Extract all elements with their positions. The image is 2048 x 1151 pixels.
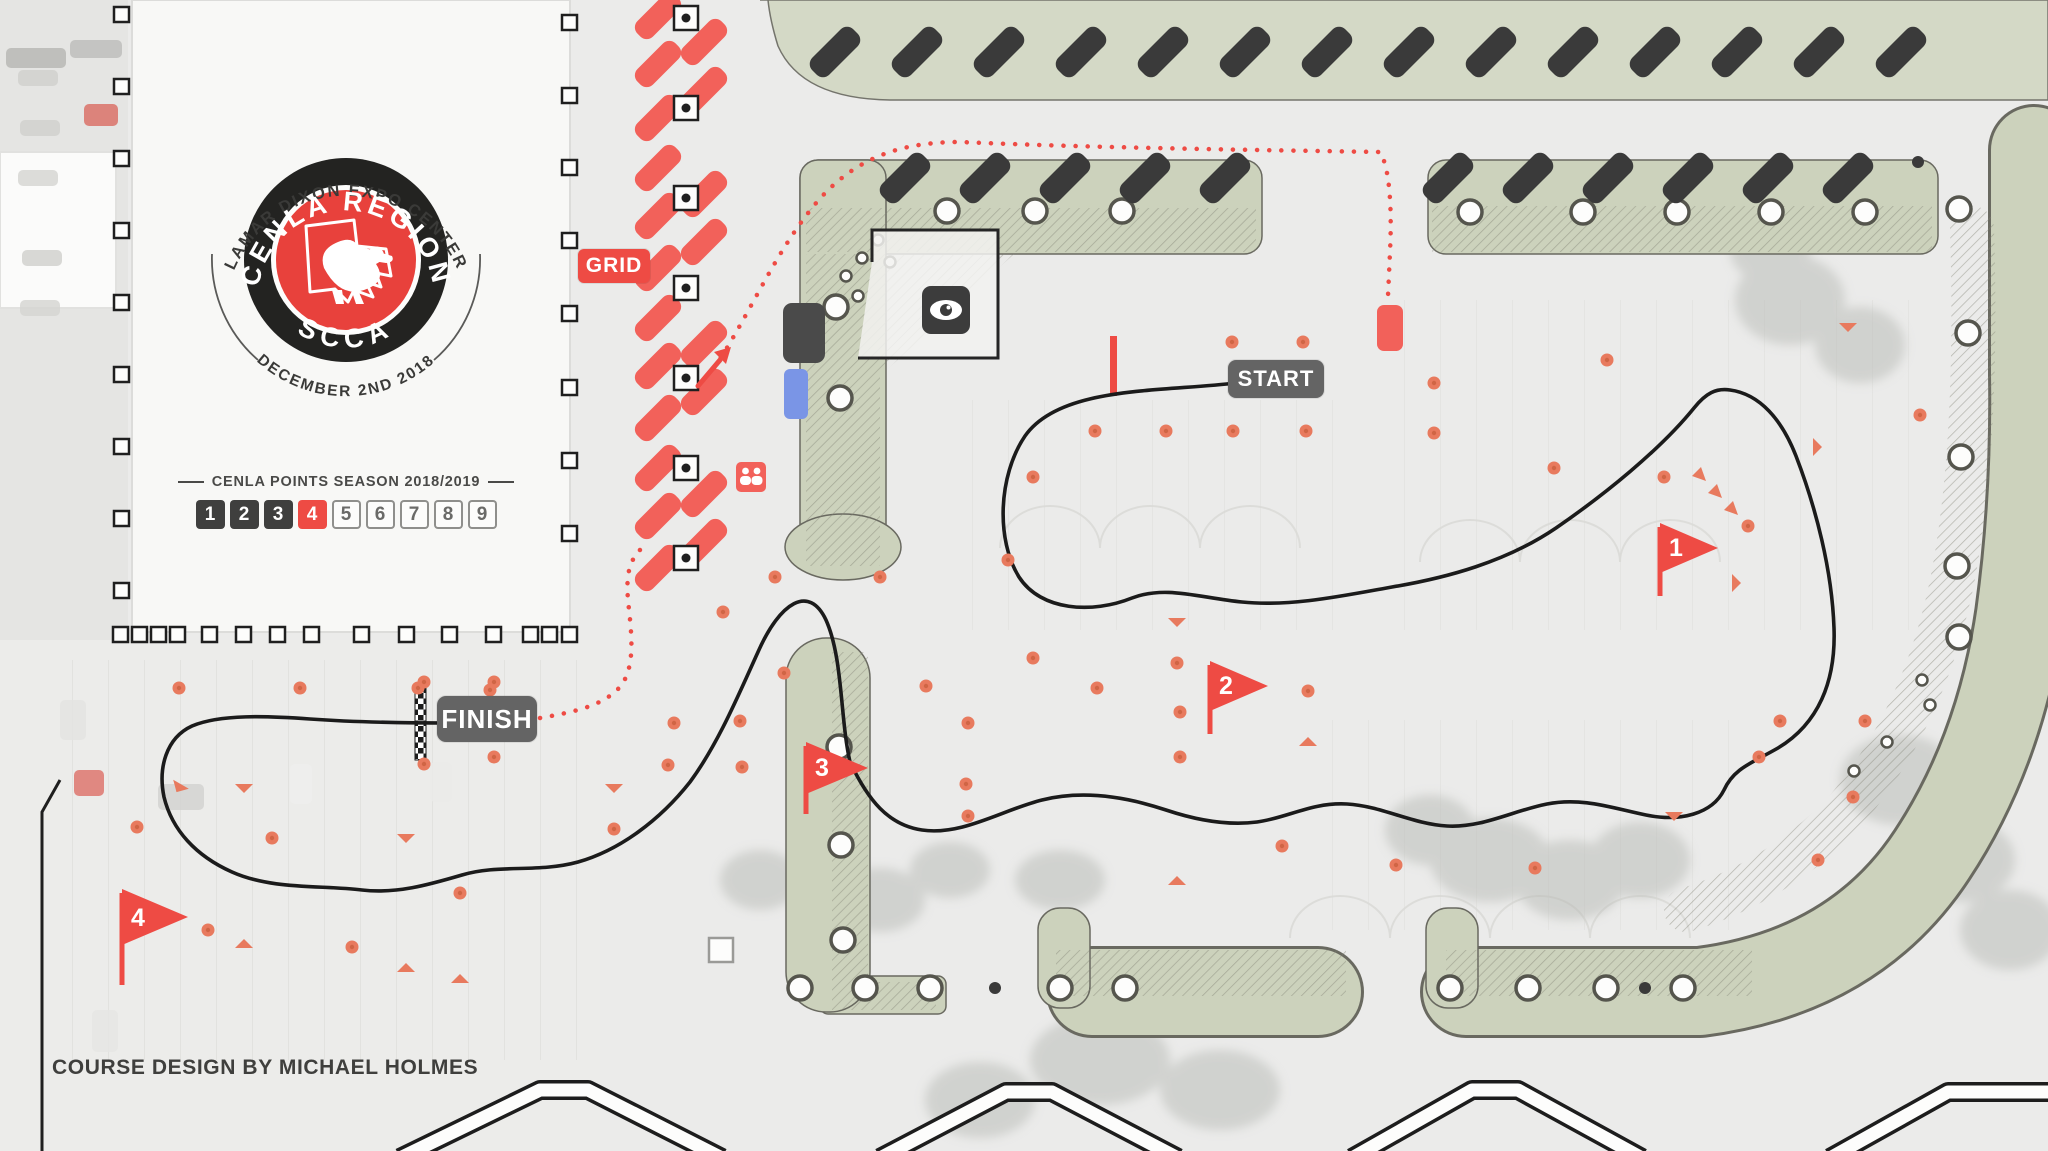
- shrub: [853, 291, 864, 302]
- flag-4-number: 4: [131, 904, 145, 932]
- tree: [1571, 200, 1595, 224]
- cone-tip: [1533, 866, 1537, 870]
- flag-2-number: 2: [1219, 672, 1233, 700]
- grid-label-badge: GRID: [578, 249, 650, 283]
- event-box-4-current: 4: [298, 500, 327, 529]
- staging-car: [1377, 305, 1403, 351]
- light-pole: [674, 96, 698, 120]
- timing-trailer: [783, 303, 825, 363]
- fence-post: [114, 79, 129, 94]
- fence-post: [114, 439, 129, 454]
- fence-post: [113, 627, 128, 642]
- faded-car: [70, 40, 122, 58]
- fence-post: [114, 223, 129, 238]
- spectator-area: [858, 230, 998, 358]
- start-label-badge: START: [1228, 360, 1324, 398]
- cone-tip: [721, 610, 725, 614]
- light-pole-dot: [682, 464, 691, 473]
- fence-post: [562, 380, 577, 395]
- light-pole: [674, 186, 698, 210]
- fence-post: [562, 627, 577, 642]
- cone-tip: [1432, 381, 1436, 385]
- cone-tip: [206, 928, 210, 932]
- tree-canopy: [1160, 1050, 1280, 1130]
- tree-canopy: [1015, 850, 1105, 910]
- tree: [1853, 200, 1877, 224]
- tree: [1949, 445, 1973, 469]
- pole-dot: [1639, 982, 1651, 994]
- cone-tip: [270, 836, 274, 840]
- tree: [788, 976, 812, 1000]
- pole-dot: [1912, 156, 1924, 168]
- cone-tip: [964, 782, 968, 786]
- faded-car: [20, 120, 60, 136]
- tree: [1023, 199, 1047, 223]
- cone-tip: [1863, 719, 1867, 723]
- fence-post: [114, 583, 129, 598]
- tree: [1458, 200, 1482, 224]
- shrub: [1849, 766, 1860, 777]
- event-box-6: 6: [366, 500, 395, 529]
- tree-canopy: [1590, 822, 1690, 898]
- cone-tip: [1432, 431, 1436, 435]
- small-structure: [709, 938, 733, 962]
- faded-car: [22, 250, 62, 266]
- cone-tip: [458, 891, 462, 895]
- fence-post: [354, 627, 369, 642]
- fence-post: [399, 627, 414, 642]
- light-pole-dot: [682, 374, 691, 383]
- flag-3-number: 3: [815, 754, 829, 782]
- tree-canopy: [1815, 307, 1905, 383]
- tree: [935, 199, 959, 223]
- cone-tip: [1816, 858, 1820, 862]
- tree-canopy: [1385, 795, 1475, 865]
- tree: [1956, 321, 1980, 345]
- tree-canopy: [910, 842, 990, 898]
- fence-post: [114, 511, 129, 526]
- cone-tip: [422, 762, 426, 766]
- light-pole-dot: [682, 104, 691, 113]
- light-pole: [674, 276, 698, 300]
- fence-post: [562, 15, 577, 30]
- eye-icon: [930, 300, 962, 320]
- tree: [853, 976, 877, 1000]
- finish-label-badge: FINISH: [437, 696, 537, 742]
- cone-tip: [492, 680, 496, 684]
- cone-tip: [1178, 710, 1182, 714]
- cone-tip: [1175, 661, 1179, 665]
- points-event-row: 1 2 3 4 5 6 7 8 9: [178, 500, 514, 529]
- tree: [829, 833, 853, 857]
- faded-car: [60, 700, 86, 740]
- event-box-8: 8: [434, 500, 463, 529]
- club-logo: LAMAR DIXON EXPO CENTER CENLA REGION SCC…: [200, 114, 492, 406]
- tree: [1947, 625, 1971, 649]
- cone-tip: [492, 755, 496, 759]
- cone-tip: [1164, 429, 1168, 433]
- cone-tip: [966, 814, 970, 818]
- points-season-heading: CENLA POINTS SEASON 2018/2019: [178, 474, 514, 490]
- shrub: [841, 271, 852, 282]
- fence-post: [486, 627, 501, 642]
- event-box-2: 2: [230, 500, 259, 529]
- fence-post: [114, 151, 129, 166]
- fence-post: [562, 88, 577, 103]
- cone-tip: [1918, 413, 1922, 417]
- cone-tip: [1552, 466, 1556, 470]
- faded-car: [92, 1010, 118, 1052]
- cone-tip: [773, 575, 777, 579]
- cone-tip: [1031, 656, 1035, 660]
- tree: [828, 386, 852, 410]
- fence-post: [523, 627, 538, 642]
- fence-post: [170, 627, 185, 642]
- cone-tip: [1757, 755, 1761, 759]
- cone-tip: [1746, 524, 1750, 528]
- start-timing-light: [1110, 336, 1117, 396]
- cone-tip: [782, 671, 786, 675]
- pole-dot: [989, 982, 1001, 994]
- cone-tip: [1230, 340, 1234, 344]
- cone-tip: [1394, 863, 1398, 867]
- event-box-7: 7: [400, 500, 429, 529]
- cone-tip: [1301, 340, 1305, 344]
- tree: [1947, 197, 1971, 221]
- cone-tip: [298, 686, 302, 690]
- cone-tip: [1662, 475, 1666, 479]
- fence-post: [562, 453, 577, 468]
- cone-tip: [1605, 358, 1609, 362]
- course-map-page: 1 2 3 4: [0, 0, 2048, 1151]
- tree: [831, 928, 855, 952]
- cone-tip: [1006, 558, 1010, 562]
- tree: [1113, 976, 1137, 1000]
- fence-post: [114, 295, 129, 310]
- faded-car: [18, 170, 58, 186]
- cone-tip: [1231, 429, 1235, 433]
- light-pole: [674, 546, 698, 570]
- event-box-3: 3: [264, 500, 293, 529]
- light-pole-dot: [682, 554, 691, 563]
- fence-post: [304, 627, 319, 642]
- faded-car: [430, 762, 452, 802]
- cone-tip: [488, 688, 492, 692]
- shrub: [857, 253, 868, 264]
- fence-post: [562, 306, 577, 321]
- fence-post: [114, 7, 129, 22]
- faded-car: [6, 48, 66, 68]
- tree: [1516, 976, 1540, 1000]
- cone-tip: [740, 765, 744, 769]
- tree: [1438, 976, 1462, 1000]
- faded-car: [18, 70, 58, 86]
- tree: [1048, 976, 1072, 1000]
- event-box-1: 1: [196, 500, 225, 529]
- tree: [824, 295, 848, 319]
- light-pole-dot: [682, 194, 691, 203]
- cone-tip: [1178, 755, 1182, 759]
- cone-tip: [738, 719, 742, 723]
- event-box-9: 9: [468, 500, 497, 529]
- fence-post: [270, 627, 285, 642]
- cone-tip: [1095, 686, 1099, 690]
- cone-tip: [1306, 689, 1310, 693]
- faded-car: [20, 300, 60, 316]
- tree: [1594, 976, 1618, 1000]
- cone-tip: [350, 945, 354, 949]
- light-pole-dot: [682, 284, 691, 293]
- course-designer-credit: COURSE DESIGN BY MICHAEL HOLMES: [52, 1056, 478, 1080]
- cone-tip: [177, 686, 181, 690]
- faded-car: [290, 764, 312, 804]
- cone-tip: [672, 721, 676, 725]
- shrub: [1882, 737, 1893, 748]
- workers-badge: [736, 462, 766, 492]
- cone-tip: [1093, 429, 1097, 433]
- fence-post: [114, 367, 129, 382]
- fence-post: [236, 627, 251, 642]
- light-pole: [674, 6, 698, 30]
- cone-tip: [1304, 429, 1308, 433]
- points-season-title: CENLA POINTS SEASON 2018/2019: [212, 474, 480, 490]
- cone-tip: [422, 680, 426, 684]
- fence-post: [132, 627, 147, 642]
- cone-tip: [1031, 475, 1035, 479]
- cone-tip: [1280, 844, 1284, 848]
- faded-car: [74, 770, 104, 796]
- event-box-5: 5: [332, 500, 361, 529]
- light-pole-dot: [682, 14, 691, 23]
- fence-post: [562, 233, 577, 248]
- cone-tip: [924, 684, 928, 688]
- cone-tip: [966, 721, 970, 725]
- shrub: [1917, 675, 1928, 686]
- faded-car: [84, 104, 118, 126]
- cone-tip: [666, 763, 670, 767]
- fence-post: [202, 627, 217, 642]
- tree: [1945, 554, 1969, 578]
- tree: [1759, 200, 1783, 224]
- fence-post: [442, 627, 457, 642]
- light-pole: [674, 366, 698, 390]
- cone-tip: [1778, 719, 1782, 723]
- fence-post: [562, 160, 577, 175]
- cone-tip: [878, 575, 882, 579]
- fence-post: [542, 627, 557, 642]
- tree: [1665, 200, 1689, 224]
- fence-post: [562, 526, 577, 541]
- tree: [918, 976, 942, 1000]
- fence-post: [151, 627, 166, 642]
- flag-1-number: 1: [1669, 534, 1683, 562]
- cone-tip: [1851, 795, 1855, 799]
- cone-tip: [612, 827, 616, 831]
- tree: [1671, 976, 1695, 1000]
- shrub: [1925, 700, 1936, 711]
- blue-car: [784, 369, 808, 419]
- light-pole: [674, 456, 698, 480]
- cone-tip: [135, 825, 139, 829]
- points-season-tracker: CENLA POINTS SEASON 2018/2019 1 2 3 4 5 …: [178, 474, 514, 529]
